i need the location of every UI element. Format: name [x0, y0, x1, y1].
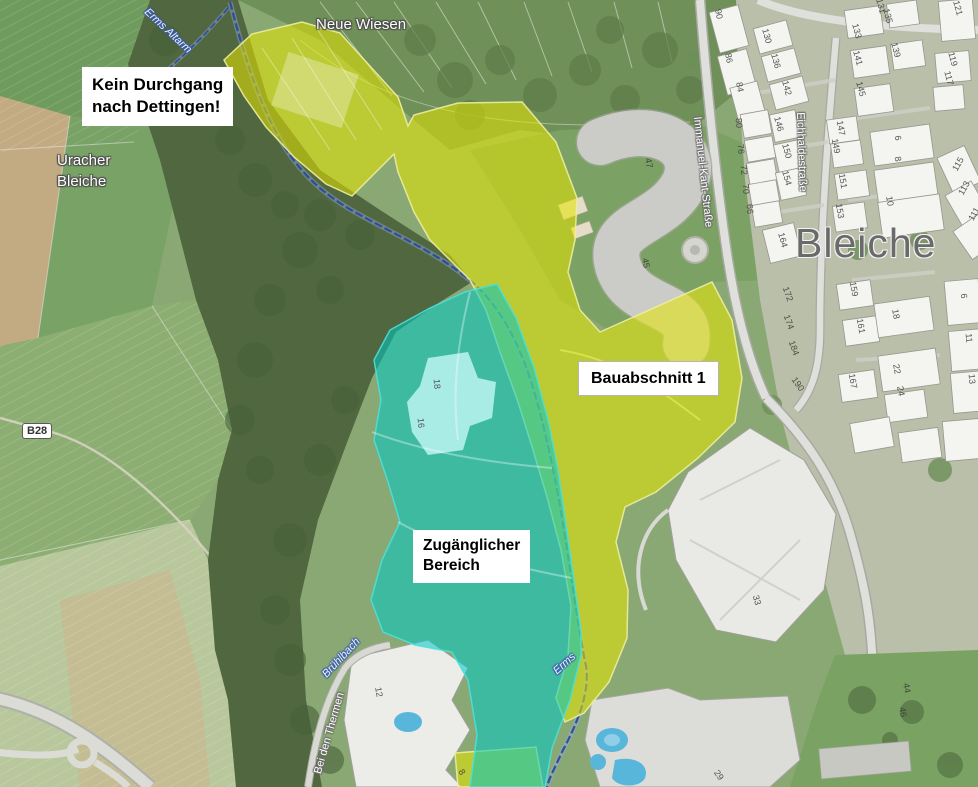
accessible-zone-line1: Zugänglicher	[423, 537, 520, 554]
b28-road-badge: B28	[22, 423, 52, 439]
no-passage-callout: Kein Durchgang nach Dettingen!	[82, 67, 233, 126]
hotel-pool	[394, 712, 422, 732]
no-passage-line2: nach Dettingen!	[92, 97, 220, 116]
construction-zone-callout: Bauabschnitt 1	[578, 361, 719, 396]
no-passage-line1: Kein Durchgang	[92, 75, 223, 94]
aerial-map: Neue WiesenUracherBleicheBleicheImmanuel…	[0, 0, 978, 787]
accessible-zone-line2: Bereich	[423, 557, 480, 574]
construction-zone-label: Bauabschnitt 1	[591, 370, 706, 387]
accessible-zone-callout: Zugänglicher Bereich	[413, 530, 530, 583]
